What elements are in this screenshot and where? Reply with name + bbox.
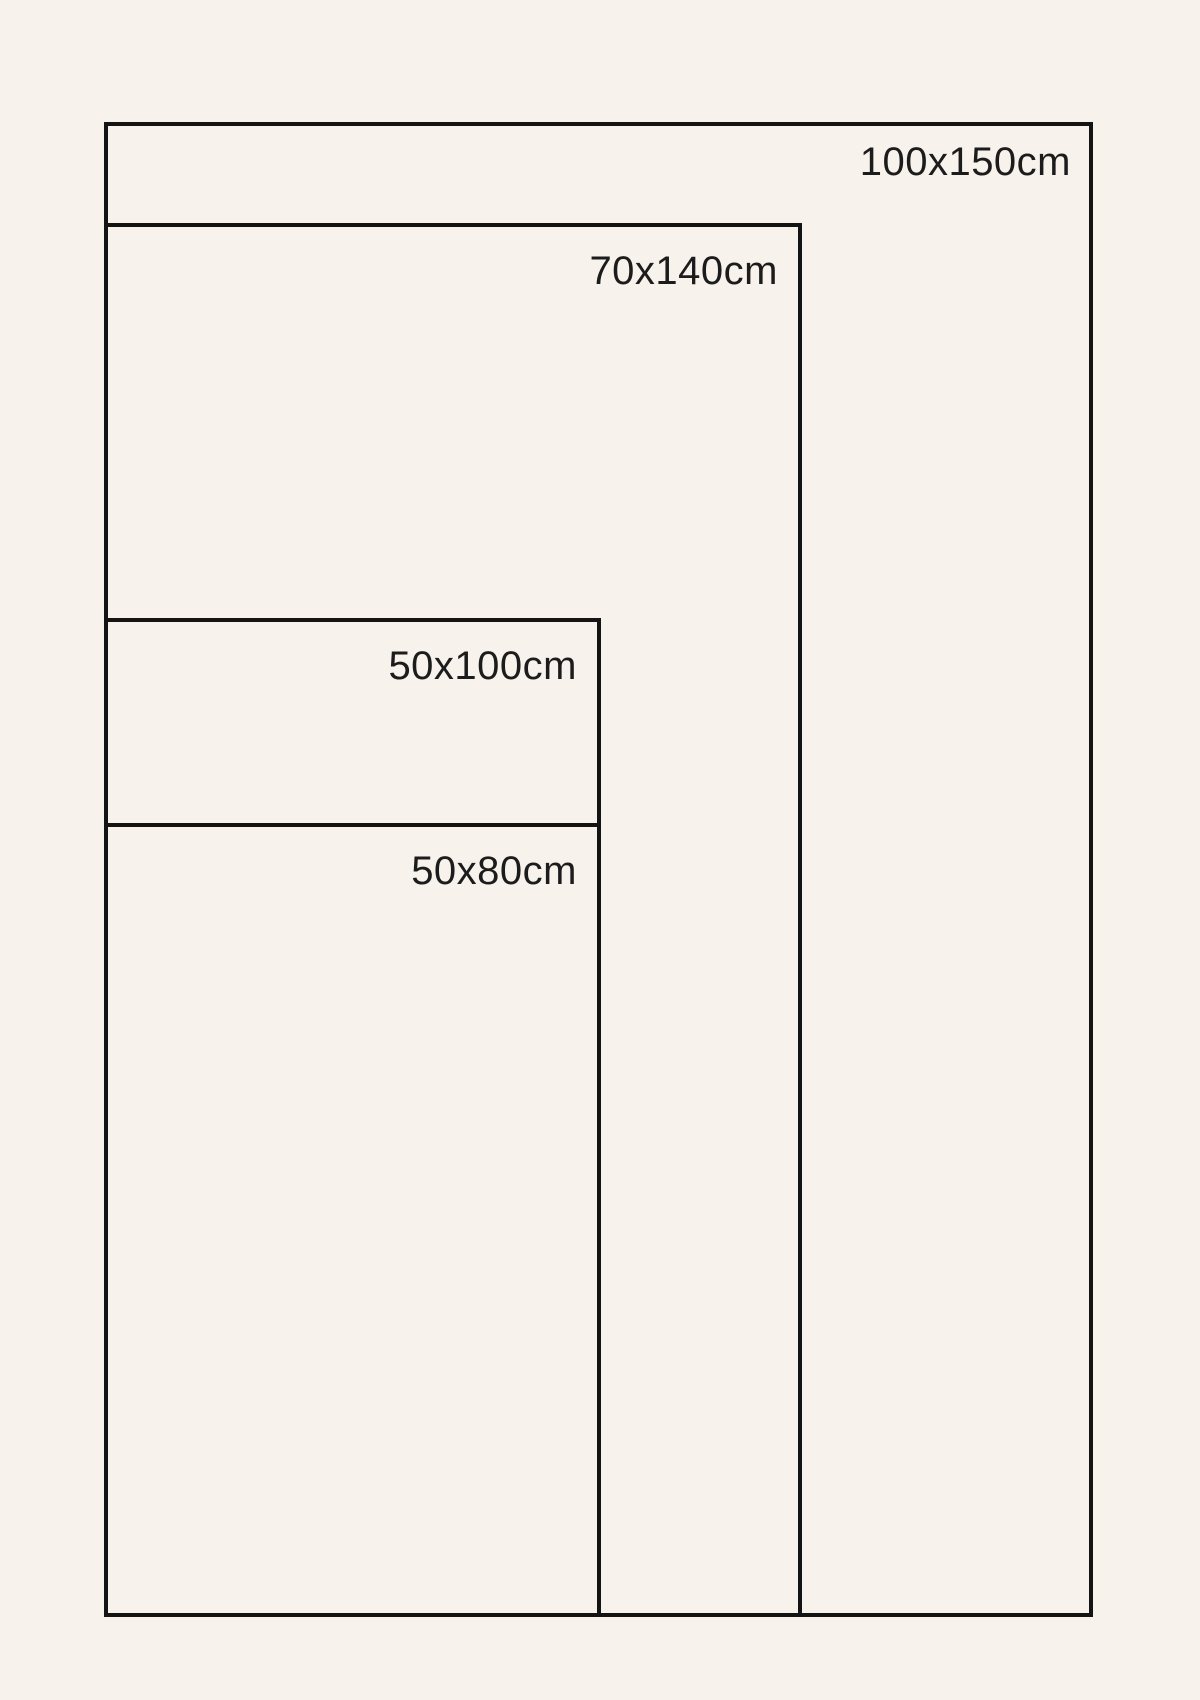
size-label-70x140: 70x140cm	[589, 251, 778, 291]
size-label-50x80: 50x80cm	[411, 851, 577, 891]
size-label-50x100: 50x100cm	[388, 646, 577, 686]
size-label-100x150: 100x150cm	[860, 142, 1071, 182]
size-comparison-diagram: 100x150cm 70x140cm 50x100cm 50x80cm	[0, 0, 1200, 1700]
size-rect-50x80: 50x80cm	[104, 823, 601, 1617]
